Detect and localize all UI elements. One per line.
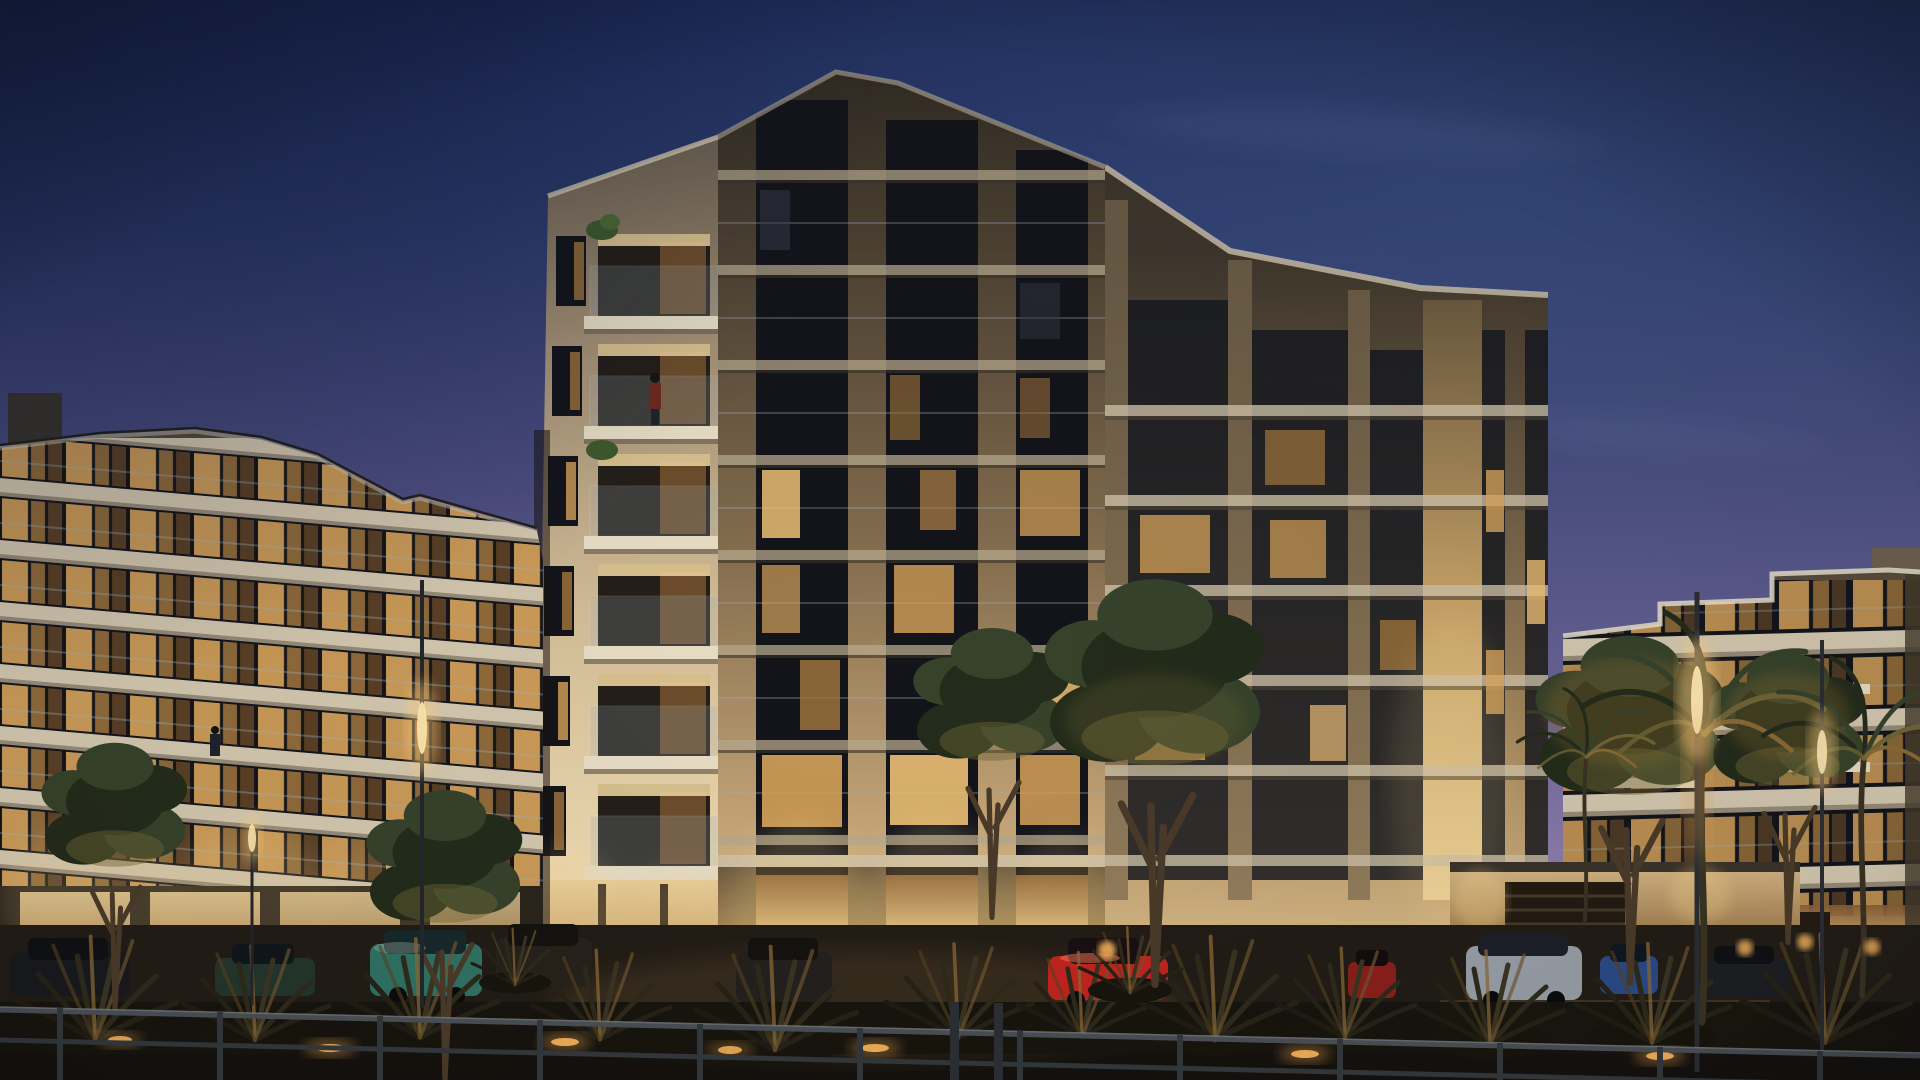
apartment-complex-rendering — [0, 0, 1920, 1080]
corner-darkening — [0, 0, 900, 700]
scene-canvas — [0, 0, 1920, 1080]
